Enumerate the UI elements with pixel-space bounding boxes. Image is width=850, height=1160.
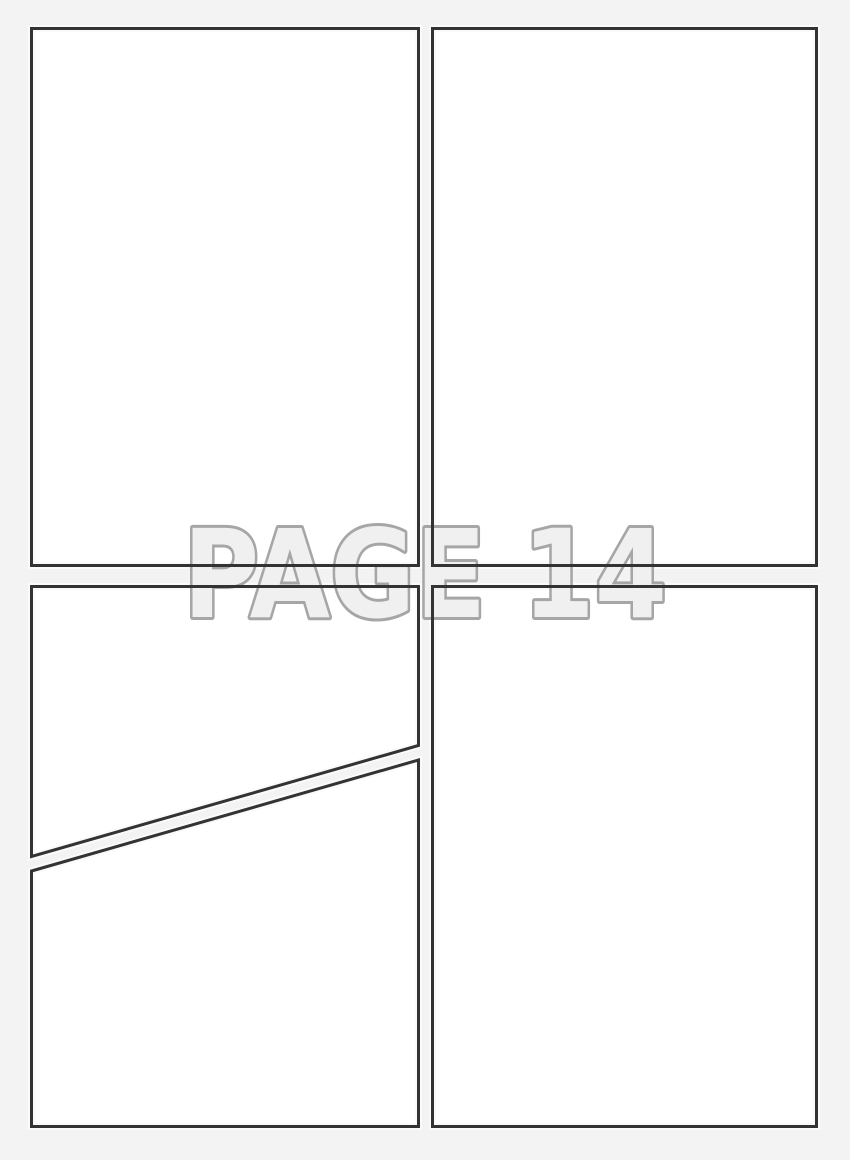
panel-top-right	[433, 29, 817, 566]
comic-template-page: PAGE 14	[0, 0, 850, 1160]
page-number-watermark: PAGE 14	[183, 504, 667, 646]
panel-bottom-right	[433, 587, 817, 1127]
panel-top-left	[32, 29, 419, 566]
comic-page-canvas: PAGE 14	[0, 0, 850, 1160]
